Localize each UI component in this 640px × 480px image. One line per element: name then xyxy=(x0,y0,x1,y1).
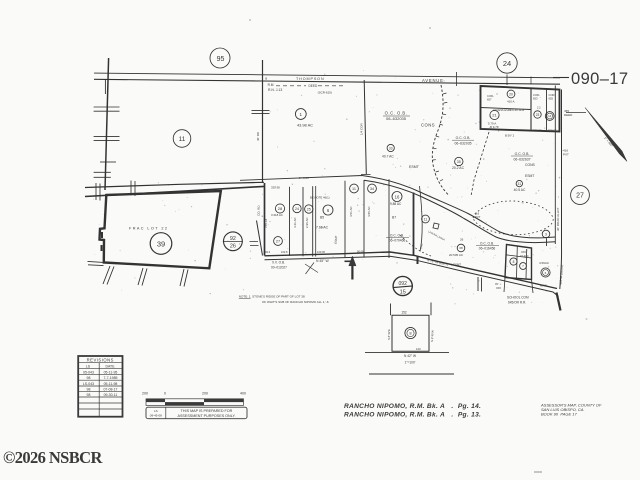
svg-text:ASSESSMENT PURPOSES ONLY.: ASSESSMENT PURPOSES ONLY. xyxy=(178,414,236,418)
svg-text:2.2: 2.2 xyxy=(537,106,541,110)
svg-text:31: 31 xyxy=(518,182,522,186)
svg-text:92: 92 xyxy=(230,236,236,242)
svg-text:05-11-95: 05-11-95 xyxy=(104,370,118,374)
svg-text:09-45-08: 09-45-08 xyxy=(150,413,162,417)
svg-text:PVT: PVT xyxy=(563,153,569,157)
svg-text:4.41 AC: 4.41 AC xyxy=(293,216,297,228)
svg-text:95: 95 xyxy=(217,56,225,63)
svg-text:OF WHIT'S SUB OF RANCHO N: OF WHIT'S SUB OF RANCHO NIPOMO ALL 1,'-6 xyxy=(262,300,329,304)
svg-text:X.V. O.B.: X.V. O.B. xyxy=(272,261,285,265)
svg-text:20: 20 xyxy=(509,93,513,97)
svg-text:LAGUNA LARGA: LAGUNA LARGA xyxy=(428,230,446,242)
svg-text:B7: B7 xyxy=(392,216,396,220)
svg-text:645/OR R.R.: 645/OR R.R. xyxy=(508,301,526,305)
svg-text:COR-: COR- xyxy=(549,93,556,97)
svg-text:06–016456: 06–016456 xyxy=(479,247,496,251)
svg-text:FRAC LOT 22: FRAC LOT 22 xyxy=(129,227,168,231)
svg-text:657: 657 xyxy=(487,98,492,102)
svg-text:90.06: 90.06 xyxy=(357,250,364,254)
svg-text:24: 24 xyxy=(503,59,511,68)
svg-text:OFF: OFF xyxy=(496,286,502,290)
svg-text:092: 092 xyxy=(399,281,408,287)
svg-text:MAIN: MAIN xyxy=(540,284,547,288)
svg-text:410 A.: 410 A. xyxy=(507,100,515,104)
svg-text:1"=3.09: 1"=3.09 xyxy=(299,176,309,180)
svg-text:8: 8 xyxy=(409,331,412,336)
svg-text:200: 200 xyxy=(202,391,208,395)
svg-text:6: 6 xyxy=(327,208,330,213)
svg-text:28: 28 xyxy=(278,206,283,211)
svg-text:20.2 AC: 20.2 AC xyxy=(452,166,465,170)
svg-text:COR-: COR- xyxy=(487,94,494,98)
svg-text:27: 27 xyxy=(576,193,584,200)
svg-text:B 56° 2: B 56° 2 xyxy=(505,134,515,138)
svg-text:(SCR-625): (SCR-625) xyxy=(318,91,332,95)
svg-text:40' RD: 40' RD xyxy=(256,131,260,141)
svg-text:330-38: 330-38 xyxy=(271,186,280,190)
svg-text:3: 3 xyxy=(545,232,547,236)
svg-text:4.51 AC: 4.51 AC xyxy=(349,205,353,217)
svg-text:152: 152 xyxy=(401,311,407,315)
svg-text:07-08-17: 07-08-17 xyxy=(103,387,117,391)
svg-text:2.96 AC: 2.96 AC xyxy=(305,216,309,228)
svg-text:ESMT: ESMT xyxy=(334,235,338,244)
svg-text:06–632035: 06–632035 xyxy=(455,142,472,146)
svg-text:120: 120 xyxy=(416,347,421,351)
svg-text:OFF: OFF xyxy=(521,250,527,254)
svg-text:400: 400 xyxy=(240,391,246,395)
svg-text:B: B xyxy=(265,77,267,81)
svg-text:DATE: DATE xyxy=(105,364,115,368)
svg-text:4.59AC: 4.59AC xyxy=(539,261,550,265)
svg-text:25: 25 xyxy=(307,208,311,212)
svg-text:ESMT: ESMT xyxy=(525,174,534,178)
svg-text:33: 33 xyxy=(389,146,393,150)
svg-text:O.C. O.B.: O.C. O.B. xyxy=(385,111,408,116)
svg-text:100.05: 100.05 xyxy=(317,250,325,254)
svg-text:CONS: CONS xyxy=(525,163,536,167)
svg-text:CONS: CONS xyxy=(421,123,435,128)
svg-text:090–17: 090–17 xyxy=(571,70,628,88)
svg-text:RANCHO NIPOMO, R.M. Bk. A: RANCHO NIPOMO, R.M. Bk. A . Pg. 13. xyxy=(344,411,481,418)
svg-text:49.3: 49.3 xyxy=(265,250,271,254)
svg-text:7: 7 xyxy=(522,264,524,268)
svg-text:THOMPSON: THOMPSON xyxy=(296,77,325,81)
svg-text:266.18: 266.18 xyxy=(264,218,268,228)
svg-text:CO. RD: CO. RD xyxy=(257,205,261,216)
svg-text:N 45° W: N 45° W xyxy=(316,259,329,263)
svg-text:98: 98 xyxy=(87,387,91,391)
svg-text:REVISIONS: REVISIONS xyxy=(87,357,114,362)
svg-text:FENCE: FENCE xyxy=(548,129,557,133)
svg-text:LS: LS xyxy=(86,364,91,368)
svg-text:40.7 AC: 40.7 AC xyxy=(382,155,394,159)
svg-text:FENCE: FENCE xyxy=(533,129,542,133)
svg-text:06–070466: 06–070466 xyxy=(389,239,406,243)
svg-text:O.C. O.B.: O.C. O.B. xyxy=(390,234,404,238)
svg-text:O.C. O.B.: O.C. O.B. xyxy=(515,152,530,156)
svg-text:0: 0 xyxy=(164,391,166,395)
svg-text:11: 11 xyxy=(179,136,186,143)
svg-text:R.N. J-13: R.N. J-13 xyxy=(268,88,282,92)
svg-text:3.318 AC: 3.318 AC xyxy=(271,213,283,217)
svg-text:DEED: DEED xyxy=(564,113,573,117)
svg-text:00–012027: 00–012027 xyxy=(271,266,287,270)
svg-text:23: 23 xyxy=(536,113,540,117)
svg-text:4.86 AC: 4.86 AC xyxy=(367,205,371,217)
svg-text:21: 21 xyxy=(492,113,497,118)
svg-text:11: 11 xyxy=(424,217,428,221)
svg-text:15: 15 xyxy=(400,290,406,296)
svg-text:ESMT: ESMT xyxy=(409,165,420,169)
svg-text:PVT: PVT xyxy=(475,215,481,219)
svg-text:7-7-1985: 7-7-1985 xyxy=(103,376,117,380)
svg-text:35: 35 xyxy=(457,160,461,164)
svg-text:THIS MAP IS PREPARED FOR: THIS MAP IS PREPARED FOR xyxy=(181,409,233,413)
svg-text:1" = 400': 1" = 400' xyxy=(603,136,614,148)
svg-text:N 8°40'W: N 8°40'W xyxy=(430,330,435,342)
svg-text:6: 6 xyxy=(545,271,547,275)
svg-text:7.66 AC: 7.66 AC xyxy=(316,226,329,230)
svg-text:05-043: 05-043 xyxy=(83,370,94,374)
svg-text:BOOK 90 PAGE 17: BOOK 90 PAGE 17 xyxy=(541,412,577,417)
svg-text:1: 1 xyxy=(300,112,303,117)
svg-text:3 AC: 3 AC xyxy=(420,243,424,249)
svg-text:1/4 COR: 1/4 COR xyxy=(360,122,364,135)
svg-text:9.88 AC: 9.88 AC xyxy=(390,202,402,206)
svg-text:B5: B5 xyxy=(320,216,324,220)
svg-text:98: 98 xyxy=(87,393,91,397)
svg-text:26: 26 xyxy=(230,244,236,250)
svg-text:CO-46 1234: CO-46 1234 xyxy=(510,108,525,112)
svg-text:RANCHO NIPOMO, R.M. Bk. A: RANCHO NIPOMO, R.M. Bk. A . Pg. 14. xyxy=(344,403,481,410)
svg-text:8: 8 xyxy=(513,260,515,264)
svg-text:14: 14 xyxy=(548,114,552,118)
svg-text:06–632637: 06–632637 xyxy=(514,157,531,161)
svg-text:AVENUE: AVENUE xyxy=(422,78,444,83)
svg-text:08: 08 xyxy=(459,246,463,250)
svg-text:SCHOOL COM: SCHOOL COM xyxy=(507,296,529,300)
svg-text:DEED: DEED xyxy=(309,84,319,88)
svg-text:24: 24 xyxy=(295,207,299,211)
svg-text:LS-043: LS-043 xyxy=(83,382,94,386)
svg-text:09-30-11: 09-30-11 xyxy=(104,393,118,397)
svg-text:445.36 (DEED): 445.36 (DEED) xyxy=(559,264,564,285)
svg-text:BK NOTE 46(1): BK NOTE 46(1) xyxy=(310,196,330,200)
svg-text:S 8°42'E: S 8°42'E xyxy=(387,329,391,340)
svg-text:102.8: 102.8 xyxy=(281,250,288,254)
svg-text:30' ROAD ALLOT: 30' ROAD ALLOT xyxy=(556,207,560,231)
svg-text:06–632035: 06–632035 xyxy=(386,116,407,121)
svg-text:39: 39 xyxy=(157,239,165,248)
svg-text:NOTE: 1. STONE'S RIDGE OF: NOTE: 1. STONE'S RIDGE OF PART OF LOT 38 xyxy=(239,295,305,299)
svg-text:40.5 AC: 40.5 AC xyxy=(514,188,526,192)
svg-text:43.98 AC: 43.98 AC xyxy=(297,122,313,127)
svg-text:27: 27 xyxy=(276,240,280,244)
svg-text:200: 200 xyxy=(142,391,148,395)
svg-text:98: 98 xyxy=(87,376,91,380)
svg-text:©2026 NSBCR: ©2026 NSBCR xyxy=(3,448,103,467)
svg-text:COR-: COR- xyxy=(533,93,540,97)
svg-text:77.4AC: 77.4AC xyxy=(520,254,529,258)
svg-text:R.M.: R.M. xyxy=(268,83,275,87)
svg-text:O.C. O.B.: O.C. O.B. xyxy=(480,242,494,246)
svg-text:1"=100': 1"=100' xyxy=(405,361,416,365)
svg-text:-B 9-78: -B 9-78 xyxy=(489,125,499,129)
svg-text:16: 16 xyxy=(395,194,400,199)
svg-text:L ESMT: L ESMT xyxy=(451,263,461,267)
svg-text:26: 26 xyxy=(460,238,464,242)
svg-text:20.505 AC: 20.505 AC xyxy=(449,253,464,257)
svg-text:655: 655 xyxy=(549,97,554,101)
svg-text:653: 653 xyxy=(533,97,538,101)
svg-text:11: 11 xyxy=(352,187,356,191)
svg-text:45': 45' xyxy=(495,282,499,286)
svg-text:34: 34 xyxy=(370,187,374,191)
svg-text:O.C. O.B.: O.C. O.B. xyxy=(456,136,471,140)
svg-text:05-11-98: 05-11-98 xyxy=(104,382,118,386)
svg-text:N 42° W: N 42° W xyxy=(404,354,416,358)
